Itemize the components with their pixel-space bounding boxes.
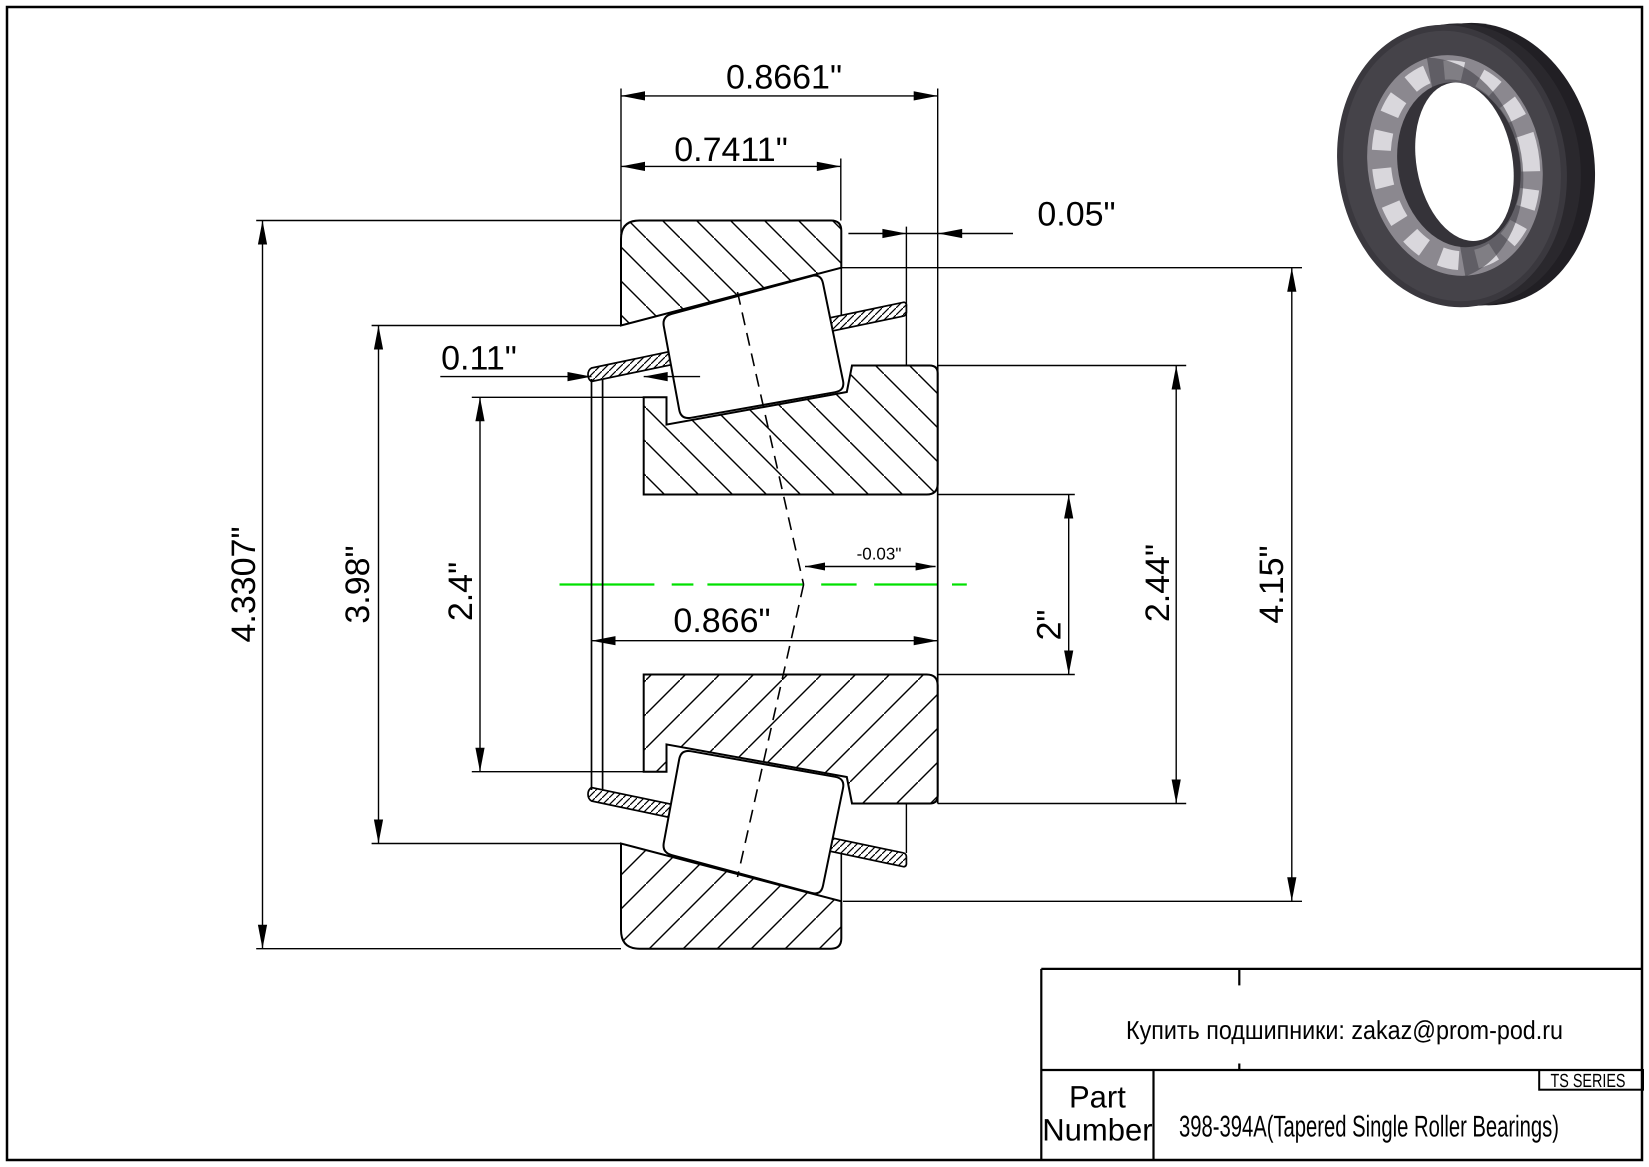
svg-text:2.44": 2.44" — [1139, 544, 1177, 622]
svg-text:3.98": 3.98" — [339, 545, 377, 623]
svg-text:0.11": 0.11" — [441, 340, 517, 378]
svg-text:2.4": 2.4" — [442, 562, 480, 621]
svg-text:Part: Part — [1069, 1080, 1126, 1115]
svg-text:0.8661": 0.8661" — [726, 59, 842, 97]
svg-text:4.15": 4.15" — [1253, 545, 1291, 623]
svg-text:4.3307": 4.3307" — [225, 526, 263, 642]
svg-text:0.7411": 0.7411" — [674, 131, 788, 169]
svg-text:Number: Number — [1042, 1112, 1152, 1147]
svg-text:Купить подшипники: zakaz@prom-: Купить подшипники: zakaz@prom-pod.ru — [1126, 1015, 1563, 1045]
svg-text:0.05": 0.05" — [1037, 196, 1115, 234]
svg-text:398-394A(Tapered Single Roller: 398-394A(Tapered Single Roller Bearings) — [1179, 1111, 1559, 1144]
svg-text:0.866": 0.866" — [673, 602, 770, 640]
svg-text:-0.03": -0.03" — [857, 545, 902, 564]
svg-text:2": 2" — [1031, 610, 1069, 641]
svg-text:TS SERIES: TS SERIES — [1551, 1071, 1626, 1092]
